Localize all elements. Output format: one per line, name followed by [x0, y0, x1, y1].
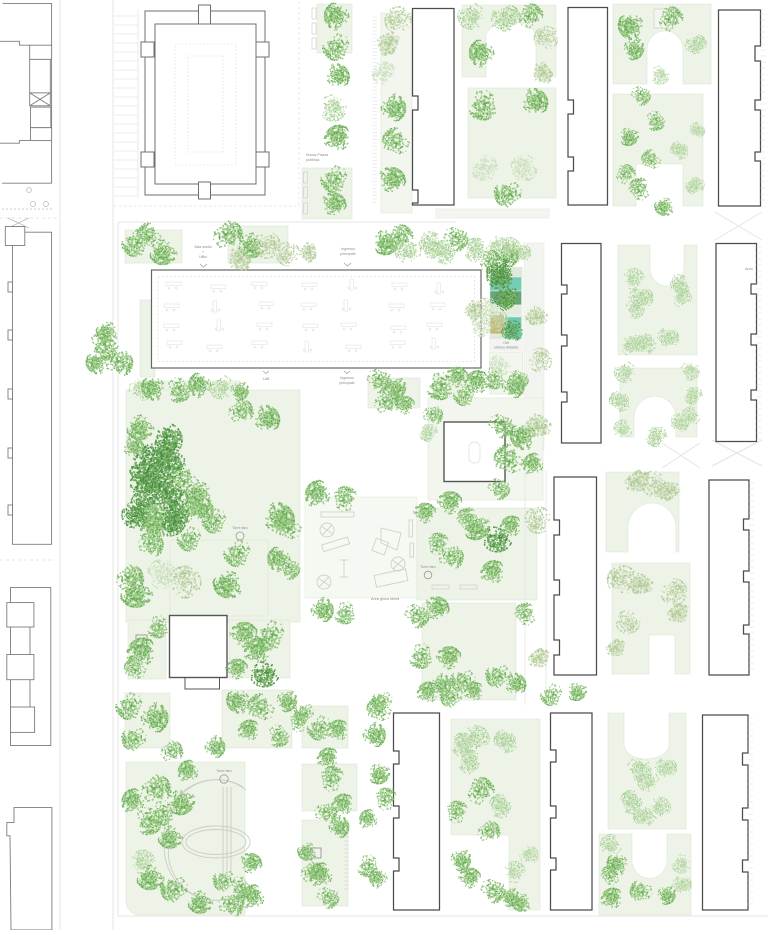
svg-text:Ingresso: Ingresso [341, 247, 355, 251]
svg-text:Orti: Orti [503, 341, 509, 345]
svg-text:Nuova Piazza: Nuova Piazza [306, 153, 328, 157]
svg-text:+: + [202, 250, 204, 254]
svg-text:Torre faro: Torre faro [216, 769, 231, 773]
svg-text:urbano-didattici: urbano-didattici [494, 346, 519, 350]
svg-text:principale: principale [339, 381, 354, 385]
svg-text:Torre faro: Torre faro [420, 565, 435, 569]
svg-text:Ingresso: Ingresso [340, 376, 354, 380]
svg-text:Uffici: Uffici [199, 255, 207, 259]
svg-text:Torre faro: Torre faro [232, 526, 247, 530]
svg-text:LAB: LAB [263, 377, 270, 381]
svg-text:Area gioco bimbi: Area gioco bimbi [371, 597, 399, 601]
svg-text:Sala studio: Sala studio [194, 245, 212, 249]
svg-text:principale: principale [340, 252, 355, 256]
svg-text:pubblica: pubblica [306, 158, 319, 162]
svg-text:Area: Area [745, 267, 753, 271]
